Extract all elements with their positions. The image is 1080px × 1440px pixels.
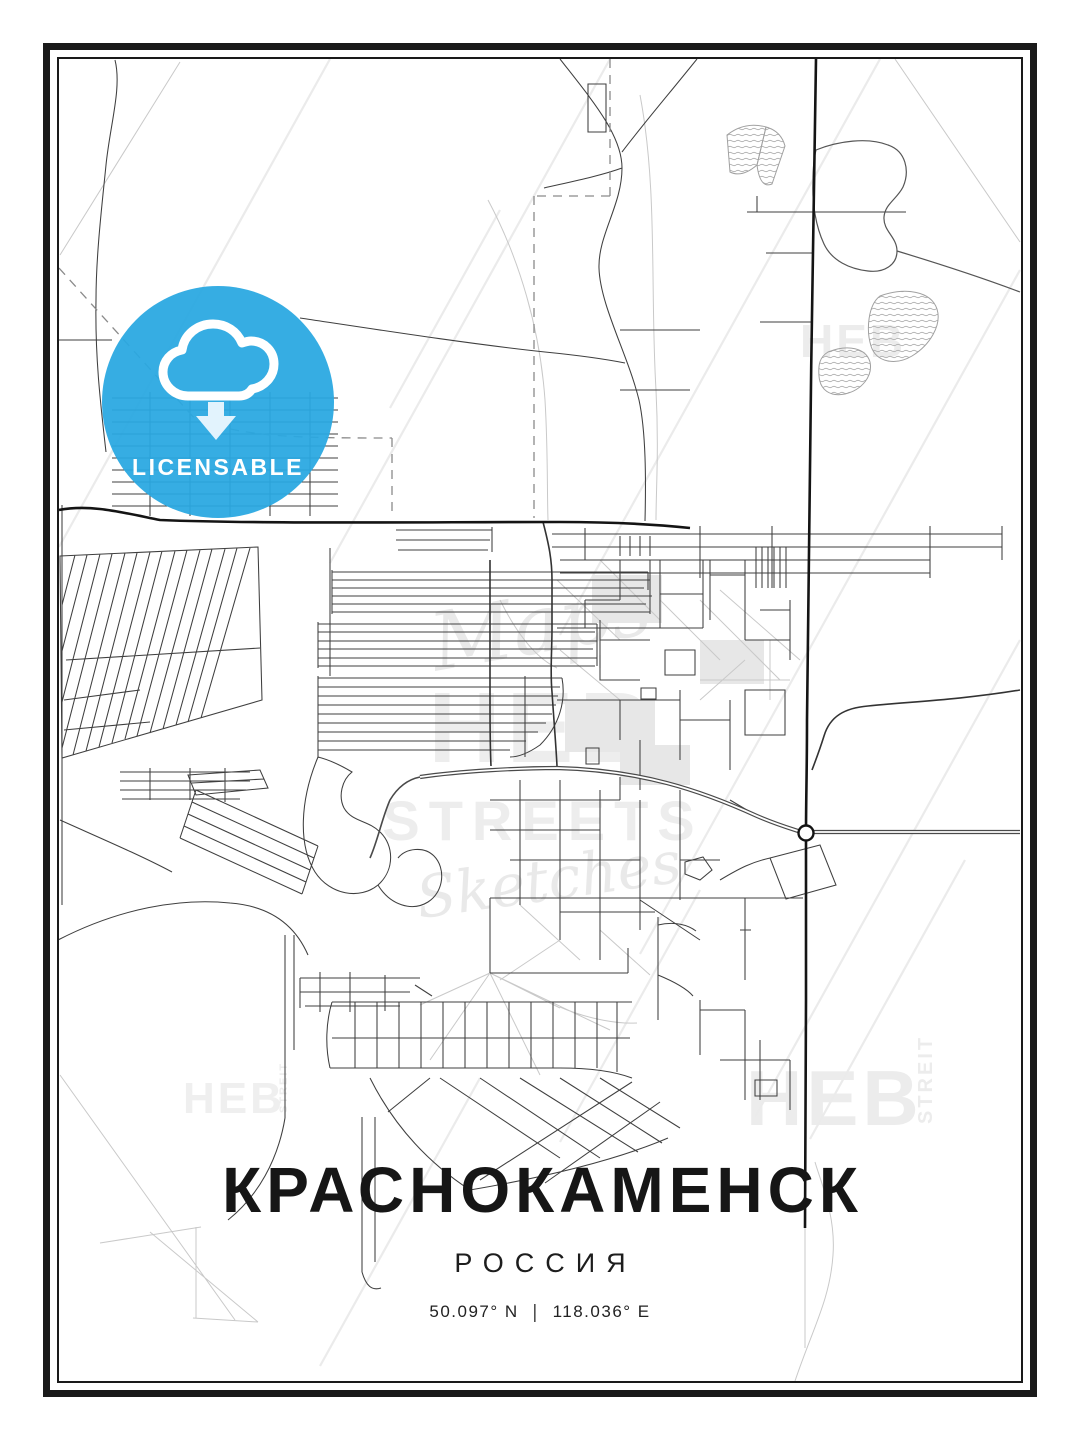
- badge-label: LICENSABLE: [102, 454, 334, 481]
- lake-outline: [813, 141, 1020, 292]
- poster-title: КРАСНОКАМЕНСК: [0, 1158, 1080, 1222]
- roundabout: [799, 826, 814, 841]
- map-poster: Maps HEB STREETS Sketches HEB HEB STREIT…: [0, 0, 1080, 1440]
- coordinates-separator: |: [533, 1302, 539, 1322]
- longitude-value: 118.036° E: [553, 1303, 651, 1320]
- licensable-badge: LICENSABLE: [102, 286, 334, 518]
- latitude-value: 50.097° N: [429, 1303, 518, 1320]
- poster-country: РОССИЯ: [0, 1250, 1080, 1277]
- poster-coordinates: 50.097° N | 118.036° E: [0, 1303, 1080, 1320]
- watermark-bottom-left: HEB: [183, 1074, 285, 1123]
- hatch-areas: [727, 125, 938, 394]
- watermark-bottom-right-side: STREIT: [915, 1035, 937, 1124]
- watermark-bottom-right: HEB: [746, 1054, 923, 1142]
- cloud-download-icon: [102, 286, 334, 518]
- watermark-bottom-left-side: STREIT: [278, 1062, 290, 1113]
